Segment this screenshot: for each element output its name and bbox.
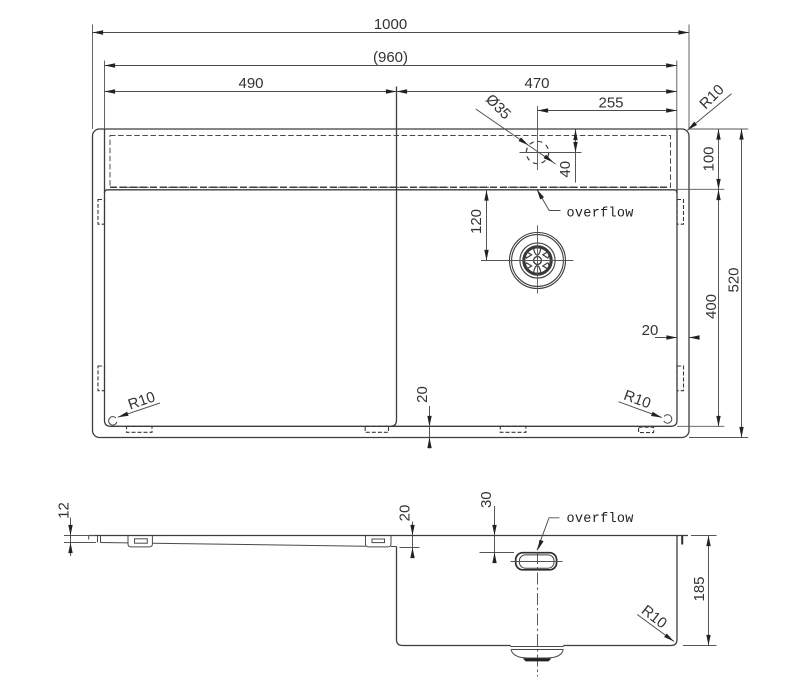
svg-text:20: 20 (414, 386, 431, 403)
svg-text:(960): (960) (373, 49, 408, 66)
svg-text:overflow: overflow (567, 207, 634, 222)
svg-text:185: 185 (691, 576, 708, 601)
svg-text:20: 20 (397, 505, 414, 522)
svg-text:30: 30 (478, 491, 495, 508)
svg-text:120: 120 (468, 209, 485, 234)
svg-text:12: 12 (56, 502, 73, 519)
svg-text:520: 520 (725, 267, 742, 292)
svg-text:100: 100 (701, 146, 718, 171)
svg-text:20: 20 (642, 322, 659, 339)
svg-text:255: 255 (598, 95, 623, 112)
svg-text:470: 470 (524, 75, 549, 92)
svg-text:490: 490 (238, 75, 263, 92)
svg-text:400: 400 (703, 294, 720, 319)
svg-text:overflow: overflow (567, 512, 634, 527)
svg-text:40: 40 (557, 161, 574, 178)
svg-text:1000: 1000 (374, 16, 407, 33)
